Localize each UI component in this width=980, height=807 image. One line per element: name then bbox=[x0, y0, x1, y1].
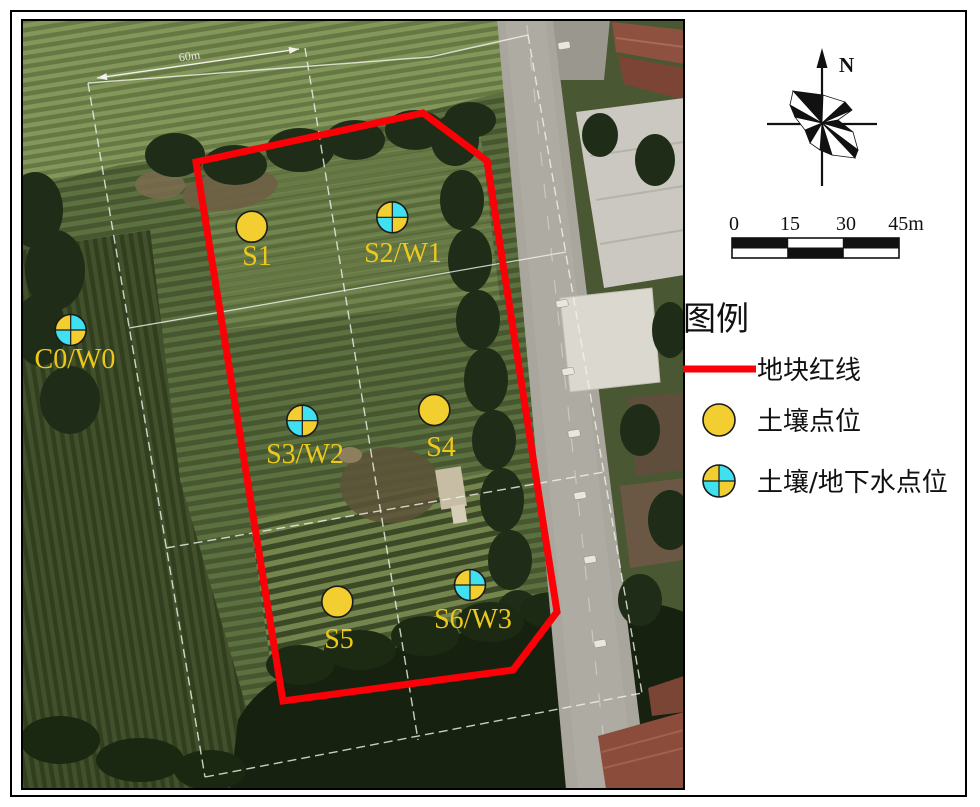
label-c0w0: C0/W0 bbox=[35, 344, 116, 375]
scale-bar: 0 15 30 45m bbox=[729, 213, 924, 258]
legend: 图例 地块红线 土壤点位 土壤/地下水点位 bbox=[683, 299, 948, 498]
sample-point-c0w0 bbox=[55, 315, 86, 346]
satellite-basemap: 60m bbox=[21, 19, 685, 790]
legend-title: 图例 bbox=[683, 299, 749, 338]
side-panel: N 0 15 30 45m 图例 地块红线 土壤点位 bbox=[680, 20, 980, 520]
legend-item-soil-groundwater: 土壤/地下水点位 bbox=[757, 468, 948, 498]
legend-soil-groundwater-marker bbox=[703, 465, 735, 497]
label-s6w3: S6/W3 bbox=[434, 604, 512, 635]
label-s3w2: S3/W2 bbox=[266, 439, 344, 470]
map-marginalia: N 0 15 30 45m 图例 地块红线 土壤点位 bbox=[680, 20, 980, 520]
sample-point-s5 bbox=[322, 586, 353, 617]
sample-point-s6w3 bbox=[455, 570, 486, 601]
legend-red-line-swatch bbox=[683, 366, 756, 373]
scale-ticks: 0 15 30 45m bbox=[729, 213, 924, 235]
scale-tick-15: 15 bbox=[780, 213, 800, 235]
north-label: N bbox=[839, 53, 854, 77]
label-s5: S5 bbox=[324, 624, 354, 655]
sample-point-s3w2 bbox=[287, 405, 318, 436]
legend-item-soil: 土壤点位 bbox=[757, 407, 861, 437]
label-s2w1: S2/W1 bbox=[364, 238, 442, 269]
north-arrow: N bbox=[767, 48, 877, 186]
legend-item-boundary: 地块红线 bbox=[757, 356, 861, 386]
label-s4: S4 bbox=[426, 432, 456, 463]
sample-point-s2w1 bbox=[377, 202, 408, 233]
scale-tick-45: 45m bbox=[888, 213, 924, 235]
scale-tick-0: 0 bbox=[729, 213, 739, 235]
legend-soil-marker bbox=[703, 404, 735, 436]
map-panel: 60m bbox=[21, 19, 685, 790]
satellite-map: 60m bbox=[21, 19, 685, 790]
scale-tick-30: 30 bbox=[836, 213, 856, 235]
label-s1: S1 bbox=[242, 241, 272, 272]
north-arrowhead bbox=[817, 48, 828, 68]
sample-point-s1 bbox=[236, 211, 267, 242]
sample-point-s4 bbox=[419, 395, 450, 426]
figure: 60m bbox=[0, 0, 980, 807]
